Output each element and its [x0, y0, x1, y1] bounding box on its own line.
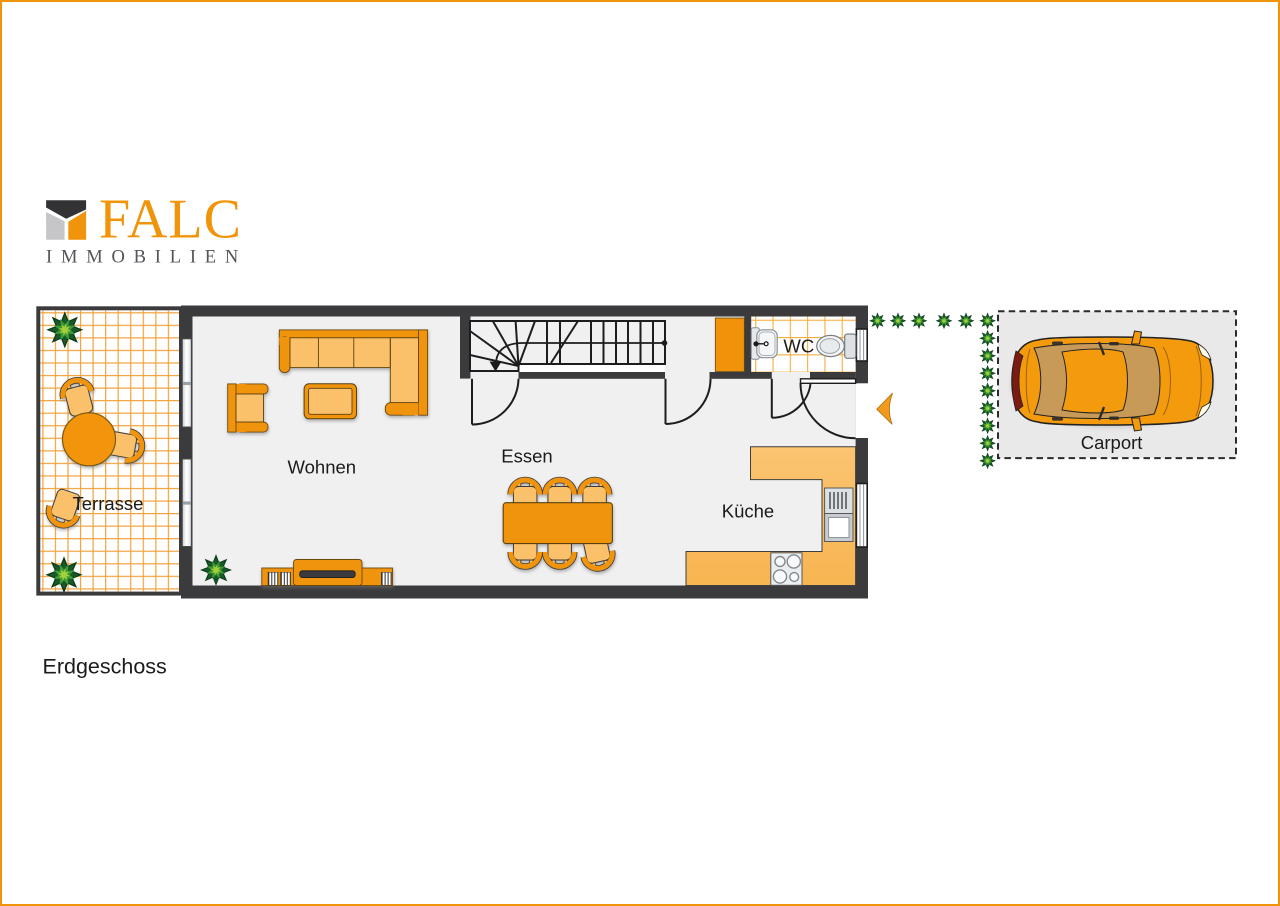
svg-text:FALC: FALC — [99, 189, 242, 251]
svg-text:Wohnen: Wohnen — [288, 457, 357, 478]
svg-text:Terrasse: Terrasse — [73, 493, 144, 514]
svg-text:WC: WC — [783, 336, 814, 357]
svg-text:Erdgeschoss: Erdgeschoss — [43, 655, 167, 679]
svg-text:Küche: Küche — [722, 500, 774, 521]
svg-text:Essen: Essen — [501, 446, 552, 467]
svg-text:IMMOBILIEN: IMMOBILIEN — [46, 248, 247, 268]
svg-text:Carport: Carport — [1081, 432, 1143, 453]
